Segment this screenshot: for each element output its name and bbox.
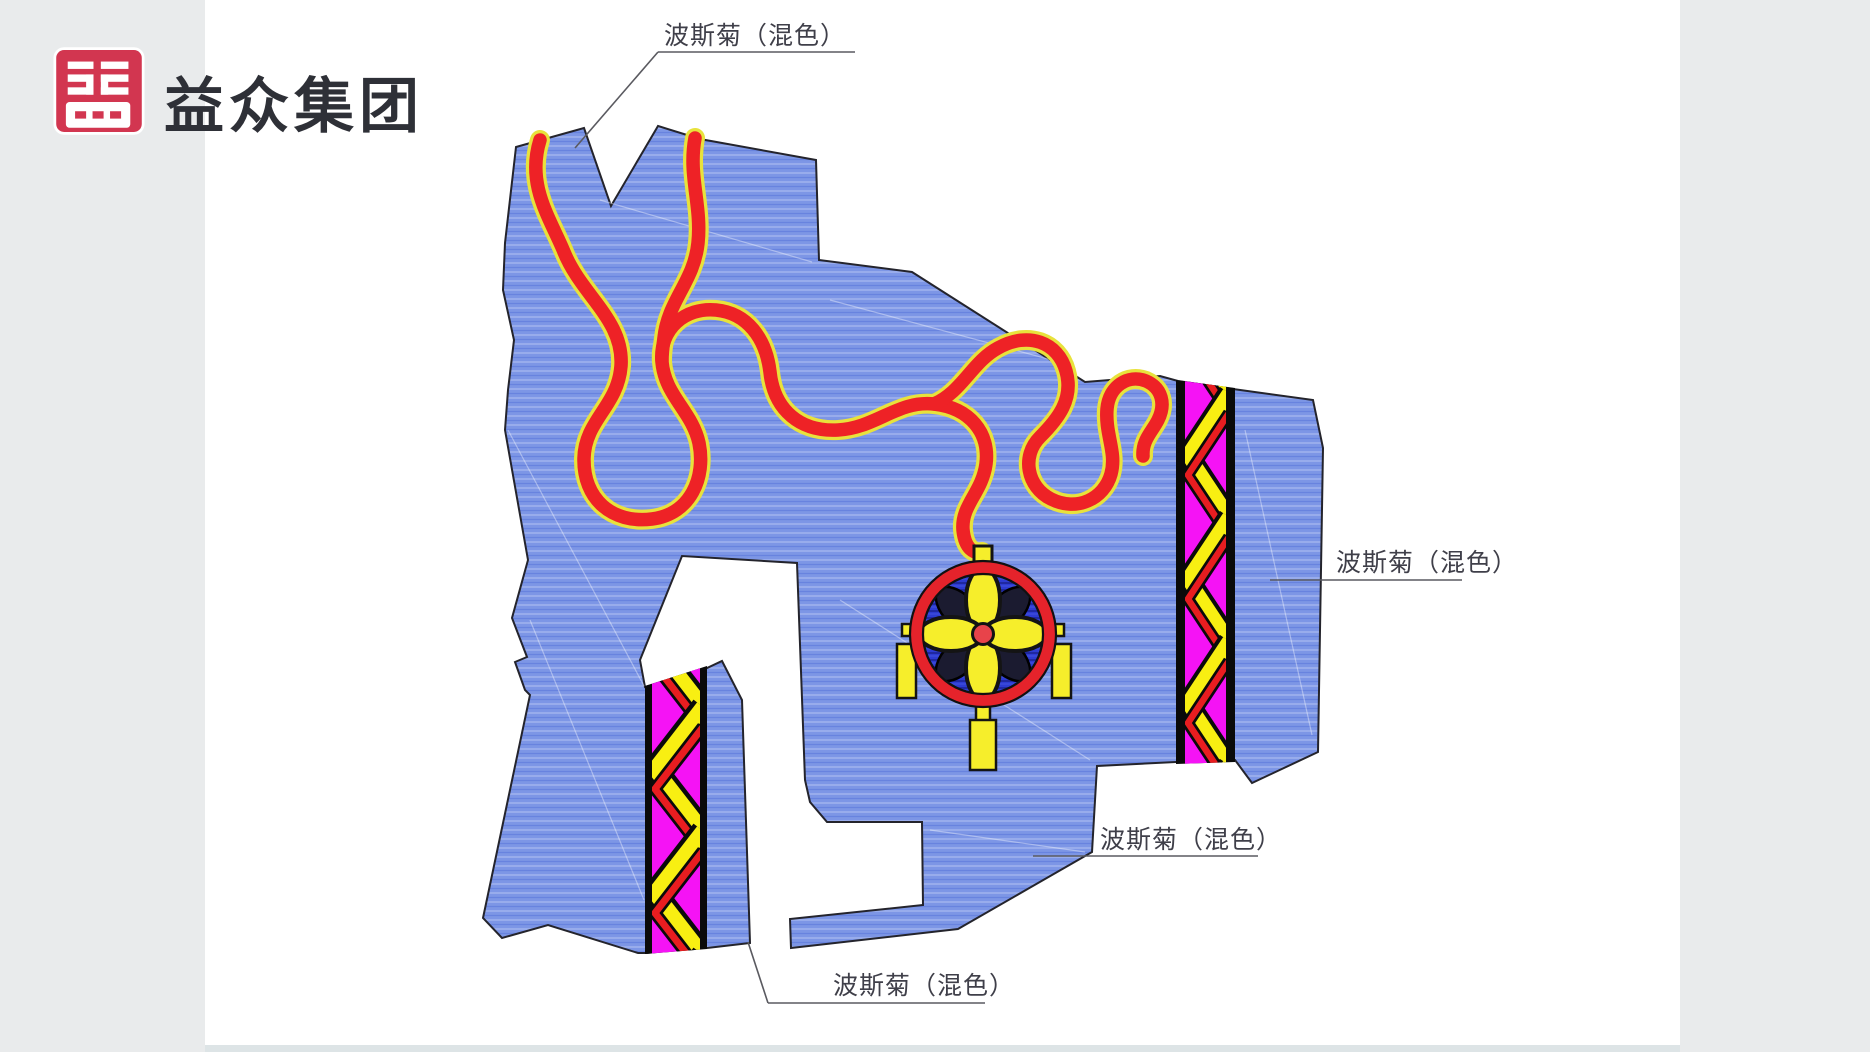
- callout-top: 波斯菊（混色）: [575, 21, 855, 148]
- planting-plan-drawing: 波斯菊（混色） 波斯菊（混色） 波斯菊（混色） 波斯菊（混色）: [0, 0, 1870, 1052]
- chevron-band-right: [1176, 375, 1235, 770]
- label-middle: 波斯菊（混色）: [1100, 825, 1282, 854]
- label-top: 波斯菊（混色）: [664, 21, 846, 50]
- label-bottom: 波斯菊（混色）: [833, 971, 1015, 1000]
- screenshot-root: { "brand": { "name": "益众集团" }, "logo": {…: [0, 0, 1870, 1052]
- callout-bottom: 波斯菊（混色）: [748, 942, 1015, 1003]
- chevron-band-left: [645, 660, 707, 960]
- label-right: 波斯菊（混色）: [1336, 548, 1518, 577]
